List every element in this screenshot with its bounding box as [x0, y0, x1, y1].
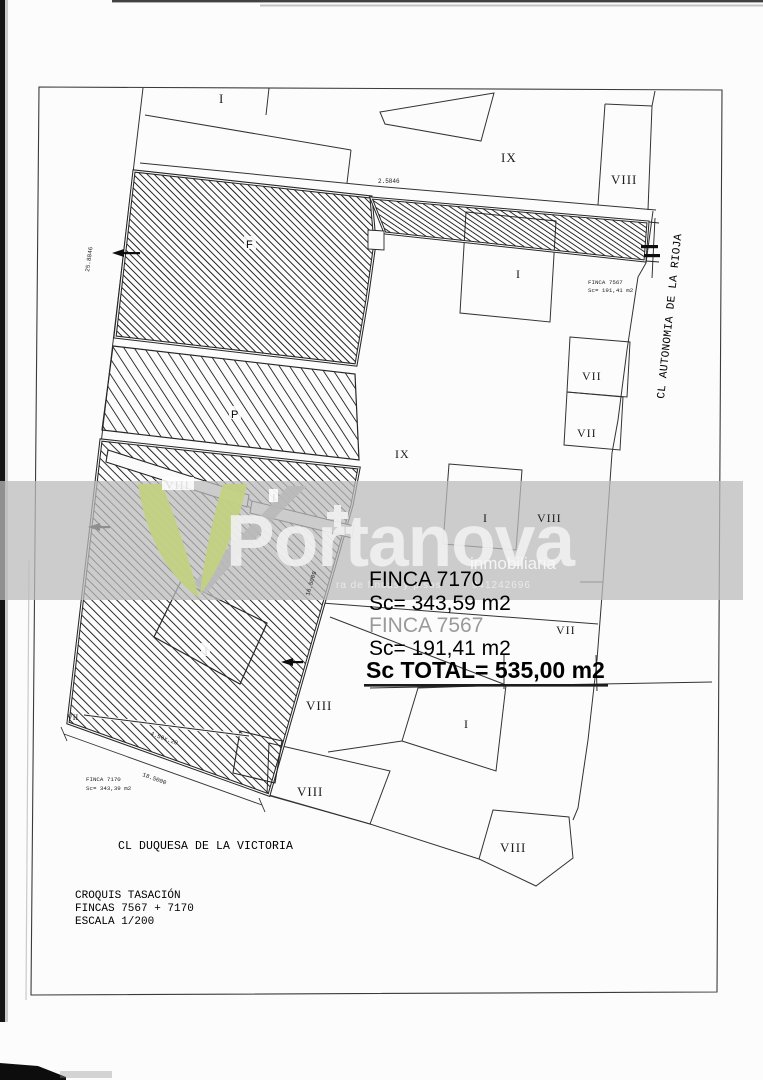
svg-text:Sc= 191,41 m2: Sc= 191,41 m2 — [588, 287, 634, 294]
svg-text:I: I — [516, 267, 520, 281]
svg-text:CL DUQUESA DE LA VICTORIA: CL DUQUESA DE LA VICTORIA — [118, 840, 293, 853]
svg-text:F: F — [246, 239, 253, 251]
svg-text:FINCA 7567: FINCA 7567 — [369, 614, 483, 637]
svg-text:ESCALA 1/200: ESCALA 1/200 — [75, 916, 154, 928]
svg-text:VIII: VIII — [611, 172, 637, 187]
svg-text:FINCAS 7567 + 7170: FINCAS 7567 + 7170 — [75, 903, 194, 915]
svg-text:2.5846: 2.5846 — [378, 178, 400, 185]
svg-text:VIII: VIII — [297, 784, 323, 799]
svg-text:VII: VII — [67, 713, 78, 722]
svg-text:VIII: VIII — [537, 511, 562, 525]
svg-text:VII: VII — [582, 369, 602, 383]
svg-text:VIII: VIII — [500, 840, 526, 855]
svg-text:25.8846: 25.8846 — [84, 246, 94, 272]
svg-text:VII: VII — [556, 623, 576, 637]
svg-text:VII: VII — [577, 426, 597, 440]
svg-text:Sc= 343,39 m2: Sc= 343,39 m2 — [86, 785, 132, 792]
svg-text:18.5000: 18.5000 — [141, 771, 167, 786]
svg-text:FINCA 7170: FINCA 7170 — [86, 776, 121, 783]
svg-text:I: I — [219, 91, 223, 106]
svg-text:I: I — [464, 717, 468, 731]
svg-text:P: P — [231, 409, 238, 421]
svg-text:CROQUIS TASACIÓN: CROQUIS TASACIÓN — [75, 888, 181, 902]
svg-text:IX: IX — [395, 447, 410, 461]
svg-text:Sc TOTAL= 535,00 m2: Sc TOTAL= 535,00 m2 — [366, 657, 605, 683]
svg-text:I: I — [483, 511, 487, 525]
svg-text:FINCA 7567: FINCA 7567 — [588, 279, 623, 286]
svg-text:CL AUTONOMIA DE LA RIOJA: CL AUTONOMIA DE LA RIOJA — [656, 233, 685, 399]
svg-text:IX: IX — [501, 150, 517, 165]
svg-text:VIII: VIII — [306, 698, 332, 713]
svg-text:FINCA 7170: FINCA 7170 — [369, 568, 483, 591]
svg-text:Sc= 343,59 m2: Sc= 343,59 m2 — [369, 592, 511, 615]
